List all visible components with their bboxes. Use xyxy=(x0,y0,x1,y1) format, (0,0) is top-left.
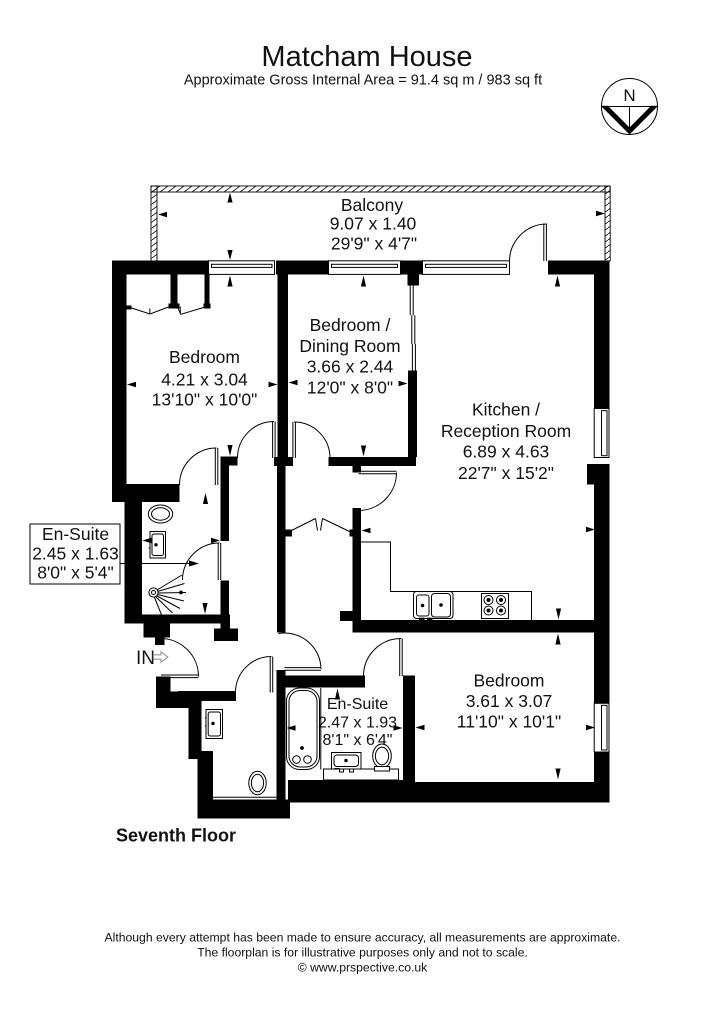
svg-text:22'7" x 15'2": 22'7" x 15'2" xyxy=(458,463,554,483)
svg-text:The floorplan is for illustrat: The floorplan is for illustrative purpos… xyxy=(197,946,528,960)
svg-text:Seventh Floor: Seventh Floor xyxy=(116,826,236,846)
svg-text:8'0" x 5'4": 8'0" x 5'4" xyxy=(37,563,114,583)
svg-text:2.47 x 1.93: 2.47 x 1.93 xyxy=(318,715,397,732)
svg-text:IN: IN xyxy=(136,648,155,669)
svg-text:Reception Room: Reception Room xyxy=(441,421,571,441)
svg-text:Matcham House: Matcham House xyxy=(261,41,472,73)
svg-text:© www.prspective.co.uk: © www.prspective.co.uk xyxy=(298,961,428,975)
svg-text:Kitchen /: Kitchen / xyxy=(472,400,540,420)
svg-text:Bedroom: Bedroom xyxy=(473,671,544,691)
svg-text:3.66 x 2.44: 3.66 x 2.44 xyxy=(307,357,394,377)
svg-text:2.45 x 1.63: 2.45 x 1.63 xyxy=(32,544,119,564)
svg-text:3.61 x 3.07: 3.61 x 3.07 xyxy=(466,691,553,711)
svg-text:Balcony: Balcony xyxy=(341,195,404,215)
svg-text:4.21 x 3.04: 4.21 x 3.04 xyxy=(161,370,248,390)
svg-text:Approximate Gross Internal Are: Approximate Gross Internal Area = 91.4 s… xyxy=(184,73,542,89)
svg-text:9.07 x 1.40: 9.07 x 1.40 xyxy=(330,214,417,234)
svg-text:Bedroom: Bedroom xyxy=(169,347,240,367)
svg-text:6.89 x 4.63: 6.89 x 4.63 xyxy=(463,442,550,462)
svg-text:En-Suite: En-Suite xyxy=(42,524,109,544)
svg-text:8'1" x 6'4": 8'1" x 6'4" xyxy=(323,732,393,749)
svg-text:13'10" x 10'0": 13'10" x 10'0" xyxy=(152,390,258,410)
svg-text:Although every attempt has bee: Although every attempt has been made to … xyxy=(105,931,621,945)
svg-text:29'9" x 4'7": 29'9" x 4'7" xyxy=(331,234,417,254)
svg-text:Bedroom /: Bedroom / xyxy=(310,315,391,335)
svg-text:12'0" x 8'0": 12'0" x 8'0" xyxy=(307,377,393,397)
svg-text:N: N xyxy=(623,86,635,105)
svg-text:11'10" x 10'1": 11'10" x 10'1" xyxy=(457,712,561,732)
svg-text:Dining Room: Dining Room xyxy=(299,336,400,356)
